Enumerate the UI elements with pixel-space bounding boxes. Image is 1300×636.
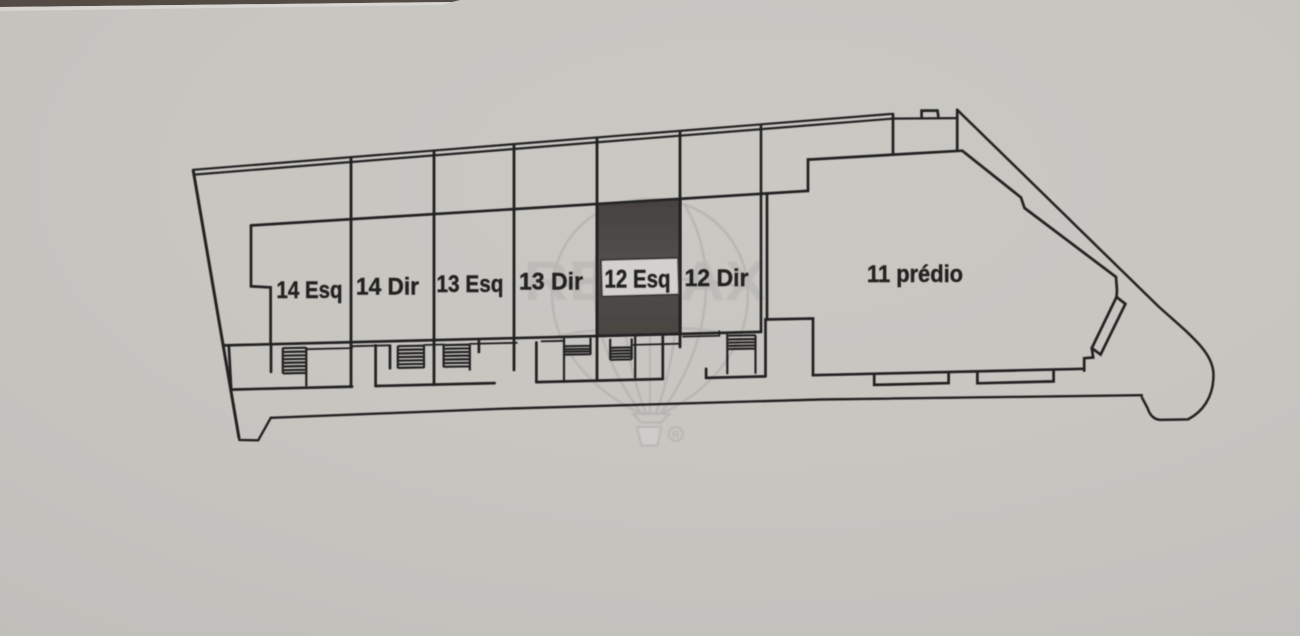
svg-text:14 Dir: 14 Dir — [356, 274, 419, 301]
svg-text:11 prédio: 11 prédio — [867, 261, 963, 288]
svg-text:R: R — [672, 430, 679, 441]
svg-text:12 Esq: 12 Esq — [605, 266, 671, 294]
svg-text:13 Dir: 13 Dir — [519, 269, 583, 296]
svg-text:13 Esq: 13 Esq — [437, 271, 504, 298]
svg-text:12 Dir: 12 Dir — [685, 265, 749, 292]
svg-text:14 Esq: 14 Esq — [277, 277, 343, 304]
